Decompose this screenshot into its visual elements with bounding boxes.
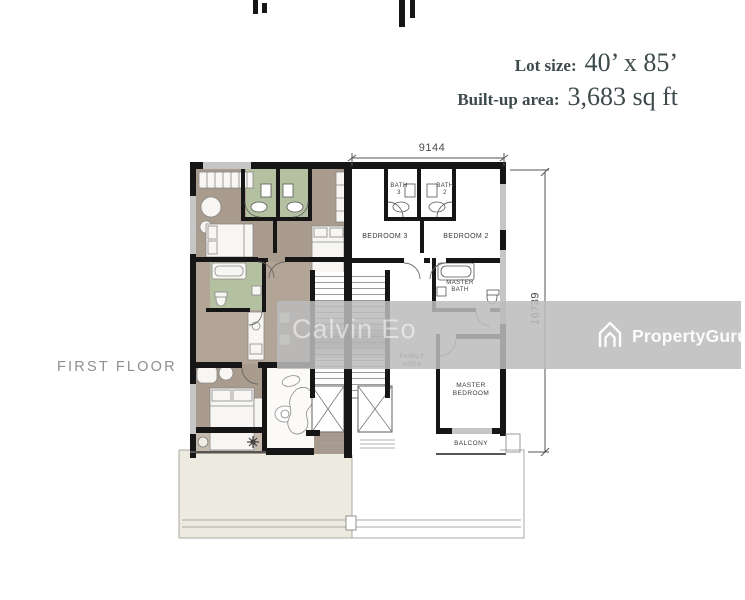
bath3-number: 3 — [384, 190, 414, 197]
builtup-value: 3,683 sq ft — [568, 82, 679, 111]
lot-size-row: Lot size:40’ x 85’ — [457, 48, 678, 82]
room-label-balcony: BALCONY — [446, 440, 496, 447]
watermark-author: Calvin Eo — [292, 314, 417, 345]
room-label-bath3: BATH 3 — [384, 183, 414, 196]
builtup-label: Built-up area: — [457, 90, 559, 109]
floorplan-screenshot: Lot size:40’ x 85’ Built-up area:3,683 s… — [0, 0, 745, 600]
room-label-bath2: BATH 2 — [430, 183, 460, 196]
propertyguru-logo: PropertyGuru — [595, 319, 745, 354]
watermark-band: Calvin Eo PropertyGuru — [277, 301, 741, 369]
floor-title: FIRST FLOOR — [57, 359, 177, 375]
room-label-master-bath: MASTER BATH — [444, 280, 476, 293]
room-label-bedroom2: BEDROOM 2 — [436, 233, 496, 240]
bath2-number: 2 — [430, 190, 460, 197]
lower-terrace — [179, 450, 524, 538]
propertyguru-house-icon — [595, 319, 625, 354]
size-header: Lot size:40’ x 85’ Built-up area:3,683 s… — [457, 48, 678, 116]
dimension-width: 9144 — [412, 142, 452, 154]
room-label-bedroom3: BEDROOM 3 — [355, 233, 415, 240]
propertyguru-wordmark: PropertyGuru — [632, 326, 745, 347]
builtup-row: Built-up area:3,683 sq ft — [457, 82, 678, 116]
lot-size-label: Lot size: — [515, 56, 577, 75]
lot-size-value: 40’ x 85’ — [585, 48, 678, 77]
room-label-master-bedroom: MASTER BEDROOM — [446, 382, 496, 397]
